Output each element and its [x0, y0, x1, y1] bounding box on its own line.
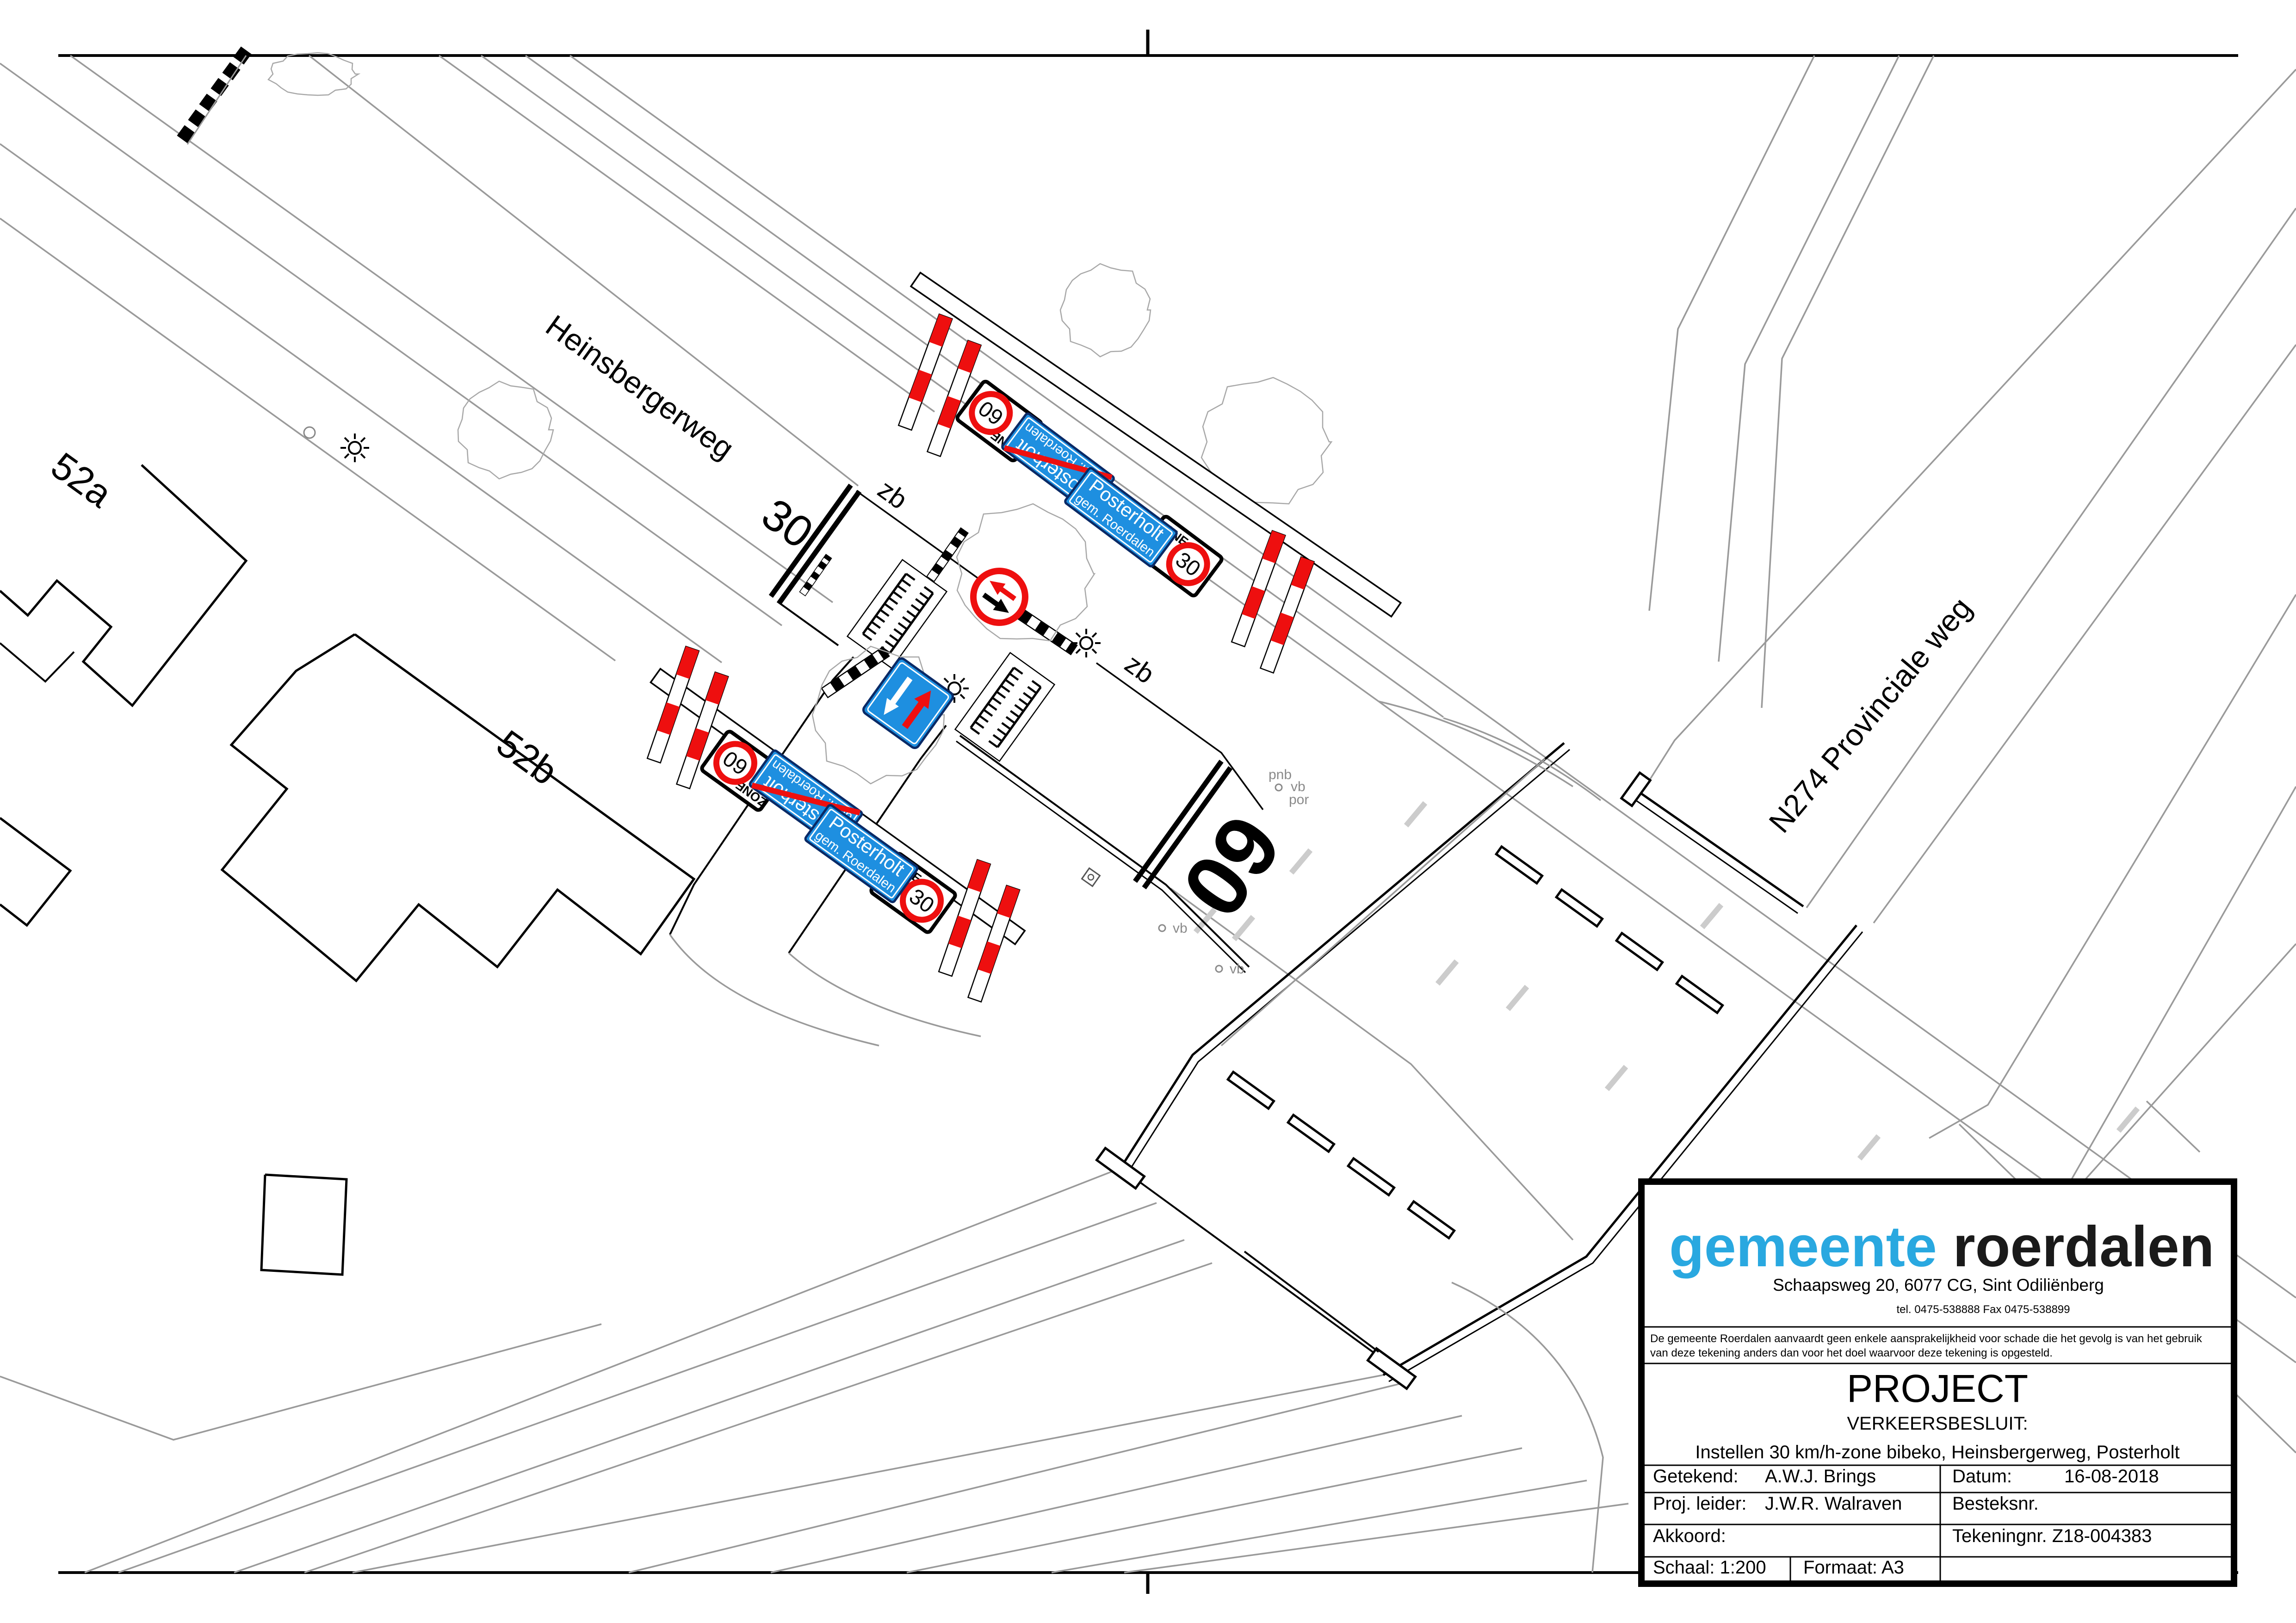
svg-text:pnb: pnb [1269, 767, 1292, 782]
svg-text:van deze tekening anders dan v: van deze tekening anders dan voor het do… [1650, 1347, 2053, 1359]
svg-text:vb: vb [1230, 961, 1244, 977]
svg-text:tel. 0475-538888 Fax 0475-538: tel. 0475-538888 Fax 0475-538899 [1897, 1303, 2070, 1316]
svg-text:PROJECT: PROJECT [1847, 1367, 2028, 1410]
svg-text:Schaapsweg 20, 6077 CG, Sint O: Schaapsweg 20, 6077 CG, Sint Odiliënberg [1773, 1276, 2104, 1295]
svg-text:Datum:: Datum: [1952, 1466, 2012, 1487]
svg-text:16-08-2018: 16-08-2018 [2064, 1466, 2159, 1487]
svg-text:J.W.R. Walraven: J.W.R. Walraven [1765, 1493, 1902, 1514]
svg-text:por: por [1289, 792, 1309, 807]
svg-text:Proj. leider:: Proj. leider: [1653, 1493, 1746, 1514]
svg-text:Instellen 30 km/h-zone bibeko,: Instellen 30 km/h-zone bibeko, Heinsberg… [1695, 1442, 2179, 1462]
svg-text:VERKEERSBESLUIT:: VERKEERSBESLUIT: [1847, 1413, 2028, 1434]
svg-text:Schaal: 1:200: Schaal: 1:200 [1653, 1557, 1766, 1578]
svg-text:A.W.J. Brings: A.W.J. Brings [1765, 1466, 1876, 1487]
svg-text:gemeente roerdalen: gemeente roerdalen [1669, 1215, 2214, 1279]
svg-text:De gemeente Roerdalen aanvaard: De gemeente Roerdalen aanvaardt geen enk… [1650, 1332, 2203, 1345]
svg-text:Akkoord:: Akkoord: [1653, 1526, 1726, 1546]
svg-text:Getekend:: Getekend: [1653, 1466, 1739, 1487]
svg-text:Besteksnr.: Besteksnr. [1952, 1493, 2039, 1514]
svg-text:vb: vb [1173, 921, 1188, 936]
svg-text:Formaat: A3: Formaat: A3 [1803, 1557, 1904, 1578]
svg-text:Tekeningnr. Z18-004383: Tekeningnr. Z18-004383 [1952, 1526, 2152, 1546]
